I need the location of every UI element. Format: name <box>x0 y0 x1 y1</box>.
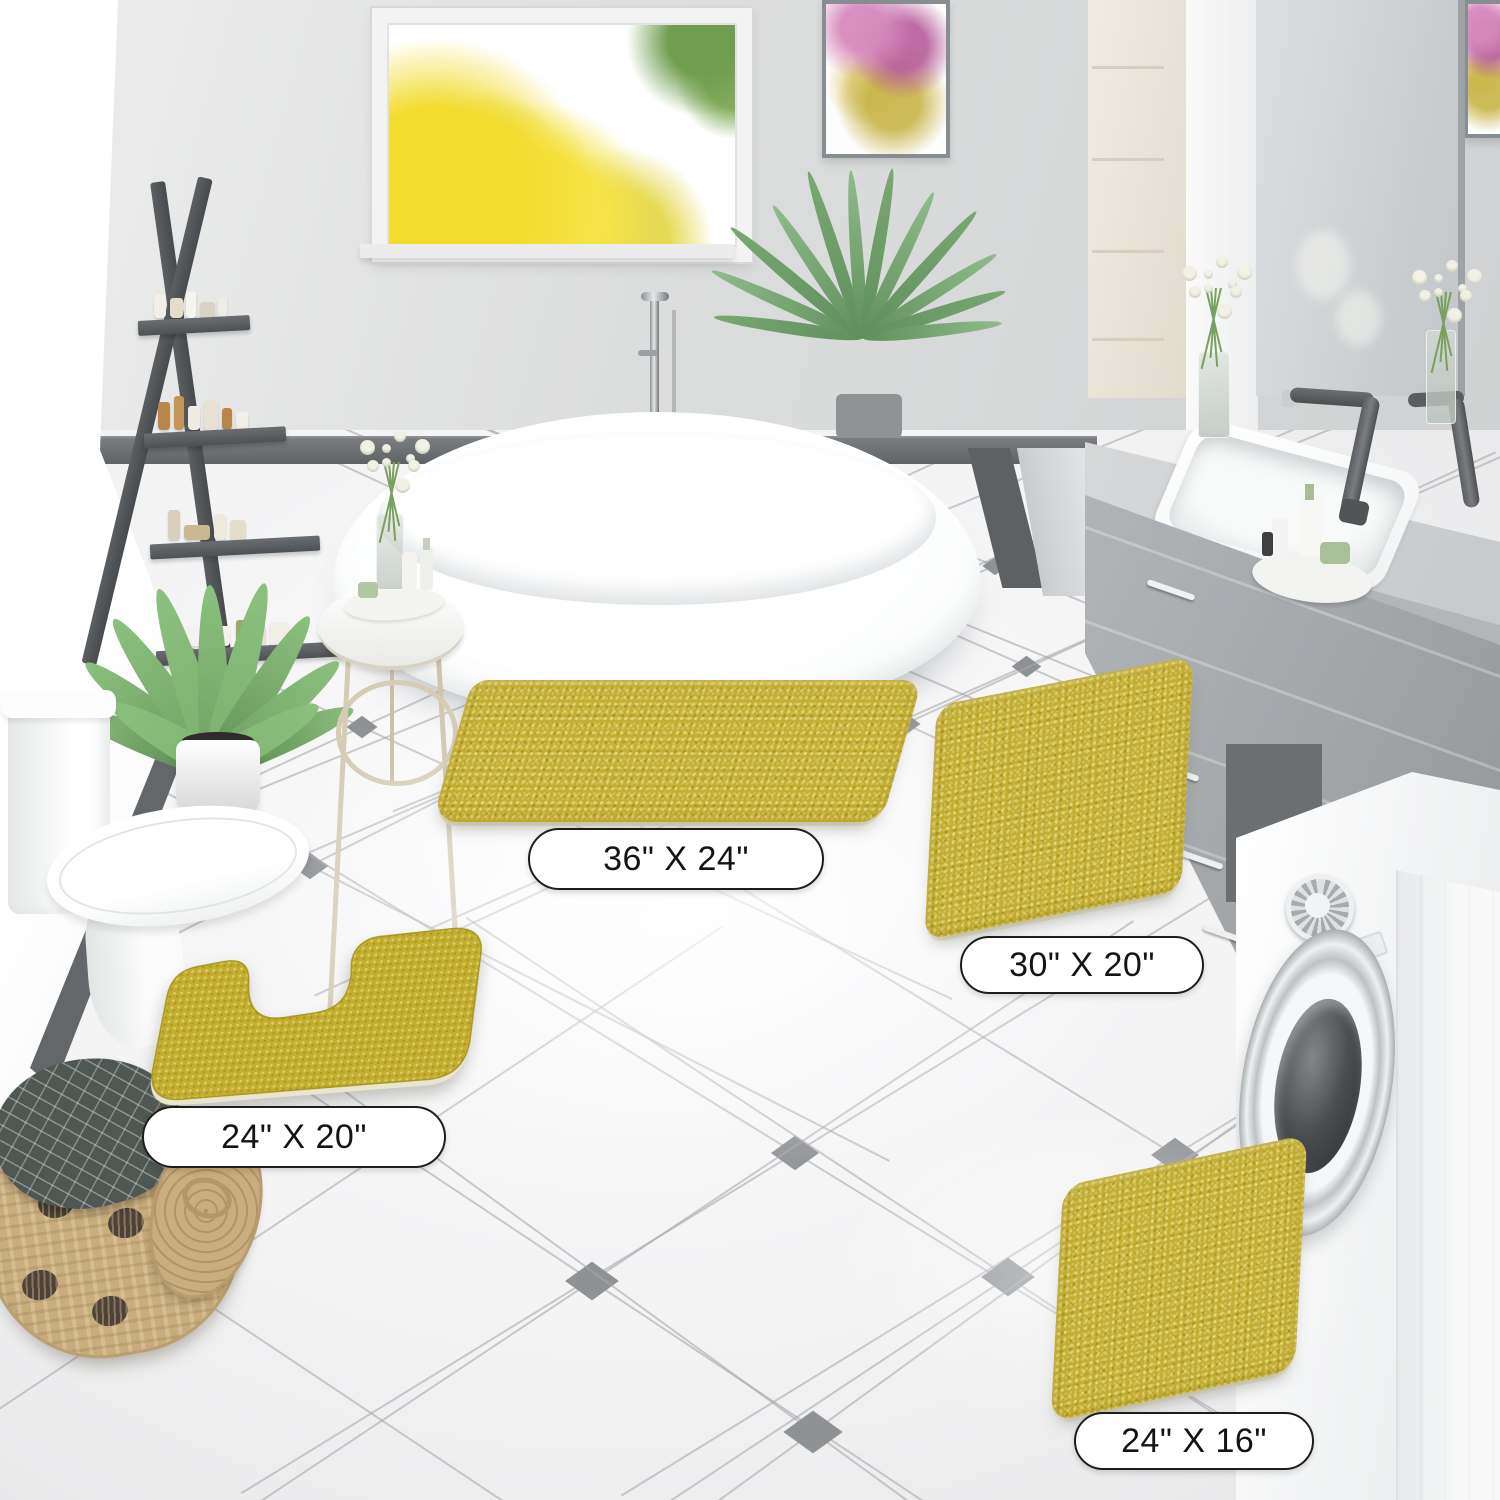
size-label-medium: 30" X 20" <box>960 936 1204 994</box>
cream-jar <box>1320 542 1350 564</box>
flower-bloom <box>1412 270 1427 285</box>
bathroom-scene: 36" X 24" 30" X 20" 24" X 20" 24" X 16" <box>0 0 1500 1500</box>
lotion-bottle <box>1272 518 1288 560</box>
contour-mat-surface <box>147 927 492 1101</box>
size-label-text: 30" X 20" <box>1009 946 1155 985</box>
flower-bloom <box>1467 269 1482 284</box>
washer-side-panel <box>1396 870 1500 1500</box>
bath-mat-36x24 <box>432 680 923 822</box>
flower-bloom <box>1419 290 1431 302</box>
pump-cap <box>1305 484 1314 500</box>
size-label-text: 24" X 16" <box>1121 1422 1267 1461</box>
washing-machine <box>1236 766 1500 1500</box>
drawer-handle <box>1146 579 1195 601</box>
size-label-small: 24" X 16" <box>1074 1412 1314 1470</box>
size-label-large: 36" X 24" <box>528 828 824 890</box>
flower-bloom <box>1182 266 1197 281</box>
flower-bloom <box>1230 286 1242 298</box>
flower-bloom <box>1434 274 1443 283</box>
size-label-contour: 24" X 20" <box>142 1106 446 1168</box>
flower-bloom <box>1446 260 1458 272</box>
counter-tray <box>1250 547 1375 609</box>
flower-bloom <box>1460 290 1472 302</box>
flower-bloom <box>1217 304 1232 319</box>
flower-bloom <box>1189 286 1201 298</box>
flower-bloom <box>1216 256 1228 268</box>
contour-bath-mat-24x20 <box>130 918 503 1108</box>
pump-bottle <box>1298 494 1322 556</box>
size-label-text: 36" X 24" <box>603 840 749 879</box>
flower-bloom <box>1204 270 1213 279</box>
cosmetic-bottle <box>1262 532 1273 556</box>
size-label-text: 24" X 20" <box>221 1118 367 1157</box>
flower-bloom <box>1447 308 1462 323</box>
flower-bloom <box>1237 265 1252 280</box>
